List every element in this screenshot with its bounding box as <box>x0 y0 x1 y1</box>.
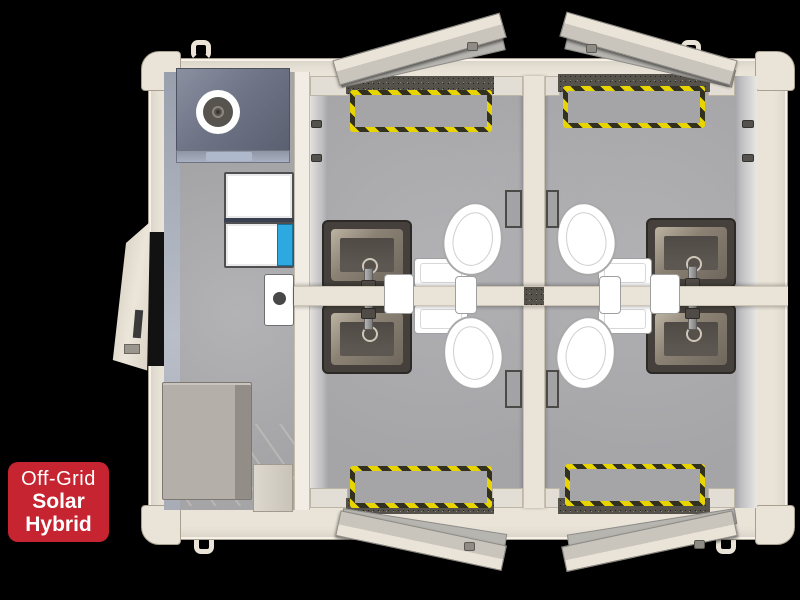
badge-line-solar: Solar <box>32 491 85 513</box>
vent-slot <box>206 152 252 161</box>
wall-clip <box>742 120 754 128</box>
plumbing-connector <box>455 276 477 314</box>
door-handle-icon <box>464 542 475 551</box>
wall-clip <box>311 154 322 162</box>
badge-line-offgrid: Off-Grid <box>21 468 96 491</box>
plumbing-connector <box>384 274 414 314</box>
toilet-roll-holder <box>505 370 522 408</box>
door-handle-icon <box>586 44 597 53</box>
wall-clip <box>742 154 754 162</box>
wall-clip <box>311 120 322 128</box>
lifting-hook-icon <box>191 40 211 60</box>
door-handle-icon <box>467 42 478 51</box>
toilet-roll-holder <box>505 190 522 228</box>
corner-cap <box>755 51 795 91</box>
toilet-roll-holder <box>546 370 559 408</box>
sink-unit <box>322 304 412 374</box>
step-box <box>253 464 293 512</box>
door-jamb <box>310 488 348 508</box>
hazard-threshold <box>350 466 492 508</box>
door-handle-icon <box>694 540 705 549</box>
door-vent-slot <box>133 310 143 339</box>
outlet-hole <box>273 292 286 305</box>
door-hinge <box>124 344 140 354</box>
hazard-threshold <box>563 86 705 128</box>
door-jamb <box>492 76 523 96</box>
storage-tank <box>162 382 252 500</box>
service-door-opening <box>148 232 164 366</box>
equipment-box-inverter <box>224 172 294 220</box>
door-jamb <box>708 488 735 508</box>
corner-cap <box>141 505 181 545</box>
hazard-threshold <box>350 90 492 132</box>
plumbing-connector <box>599 276 621 314</box>
fan-hub-dot <box>216 110 220 114</box>
plumbing-connector <box>650 274 680 314</box>
offgrid-badge: Off-Grid Solar Hybrid <box>8 462 109 542</box>
corner-cap <box>755 505 795 545</box>
product-render-toilet-unit: Off-Grid Solar Hybrid <box>0 0 800 600</box>
door-jamb <box>492 488 523 508</box>
badge-line-hybrid: Hybrid <box>25 514 92 536</box>
blue-equipment-panel <box>277 224 293 266</box>
wall-junction <box>524 287 544 305</box>
hazard-threshold <box>565 464 705 506</box>
toilet-roll-holder <box>546 190 559 228</box>
sink-unit <box>646 304 736 374</box>
